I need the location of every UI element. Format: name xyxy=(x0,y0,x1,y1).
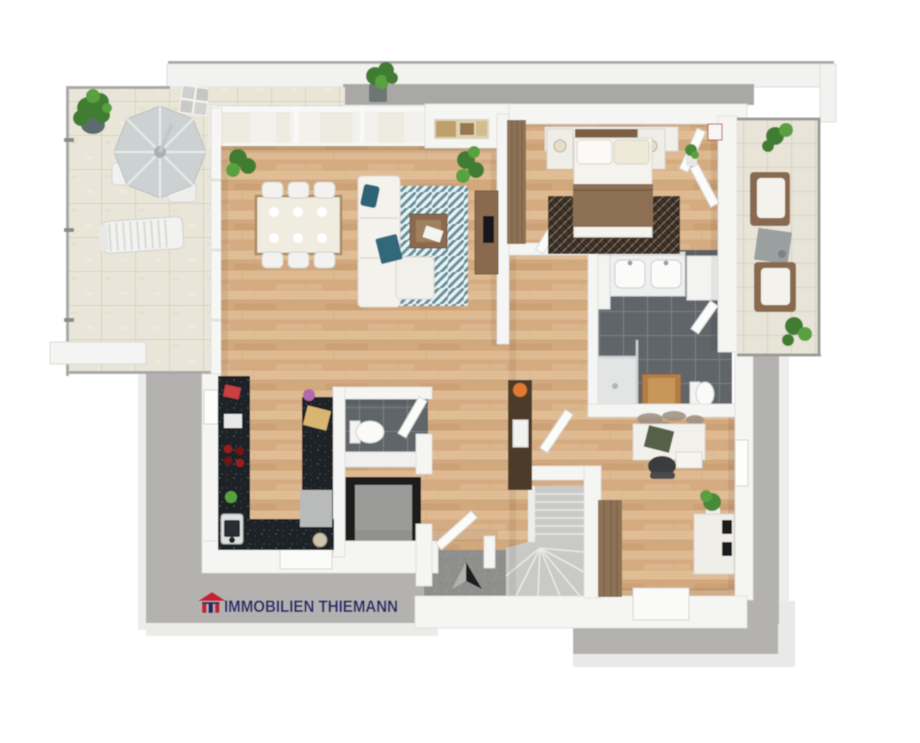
svg-text:IMMOBILIEN THIEMANN: IMMOBILIEN THIEMANN xyxy=(224,597,398,616)
